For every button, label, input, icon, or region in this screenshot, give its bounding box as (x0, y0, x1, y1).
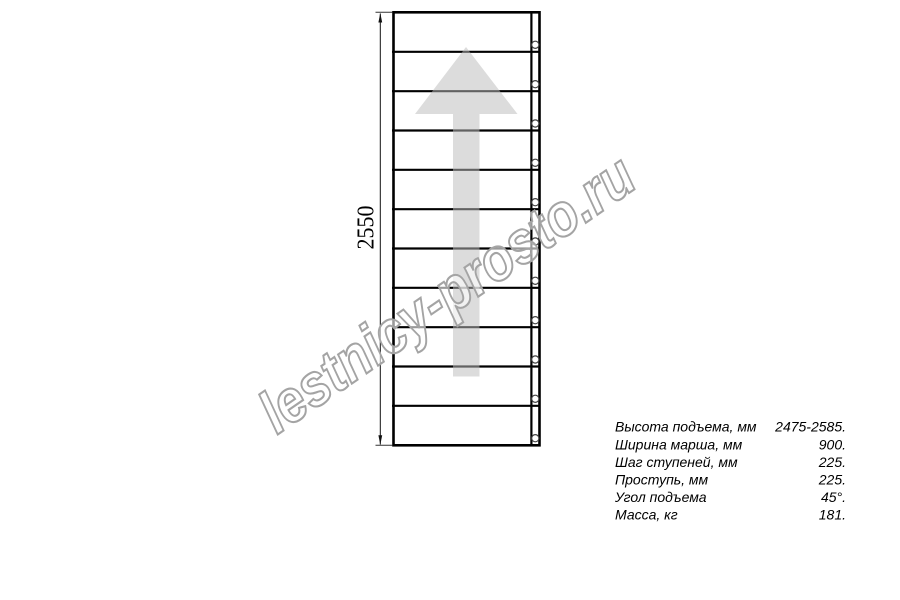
svg-text:Угол подъема: Угол подъема (614, 489, 707, 505)
svg-text:Проступь, мм: Проступь, мм (615, 472, 709, 488)
svg-text:2475-2585.: 2475-2585. (774, 419, 846, 435)
svg-text:Высота подъема, мм: Высота подъема, мм (615, 419, 757, 435)
svg-text:Ширина марша, мм: Ширина марша, мм (615, 436, 743, 452)
svg-text:Масса, кг: Масса, кг (615, 507, 678, 523)
svg-text:900.: 900. (819, 436, 846, 452)
svg-text:225.: 225. (818, 472, 846, 488)
svg-text:181.: 181. (819, 507, 846, 523)
svg-text:Шаг ступеней, мм: Шаг ступеней, мм (615, 454, 738, 470)
svg-text:2550: 2550 (353, 206, 380, 250)
svg-text:225.: 225. (818, 454, 846, 470)
svg-text:45°.: 45°. (821, 489, 846, 505)
